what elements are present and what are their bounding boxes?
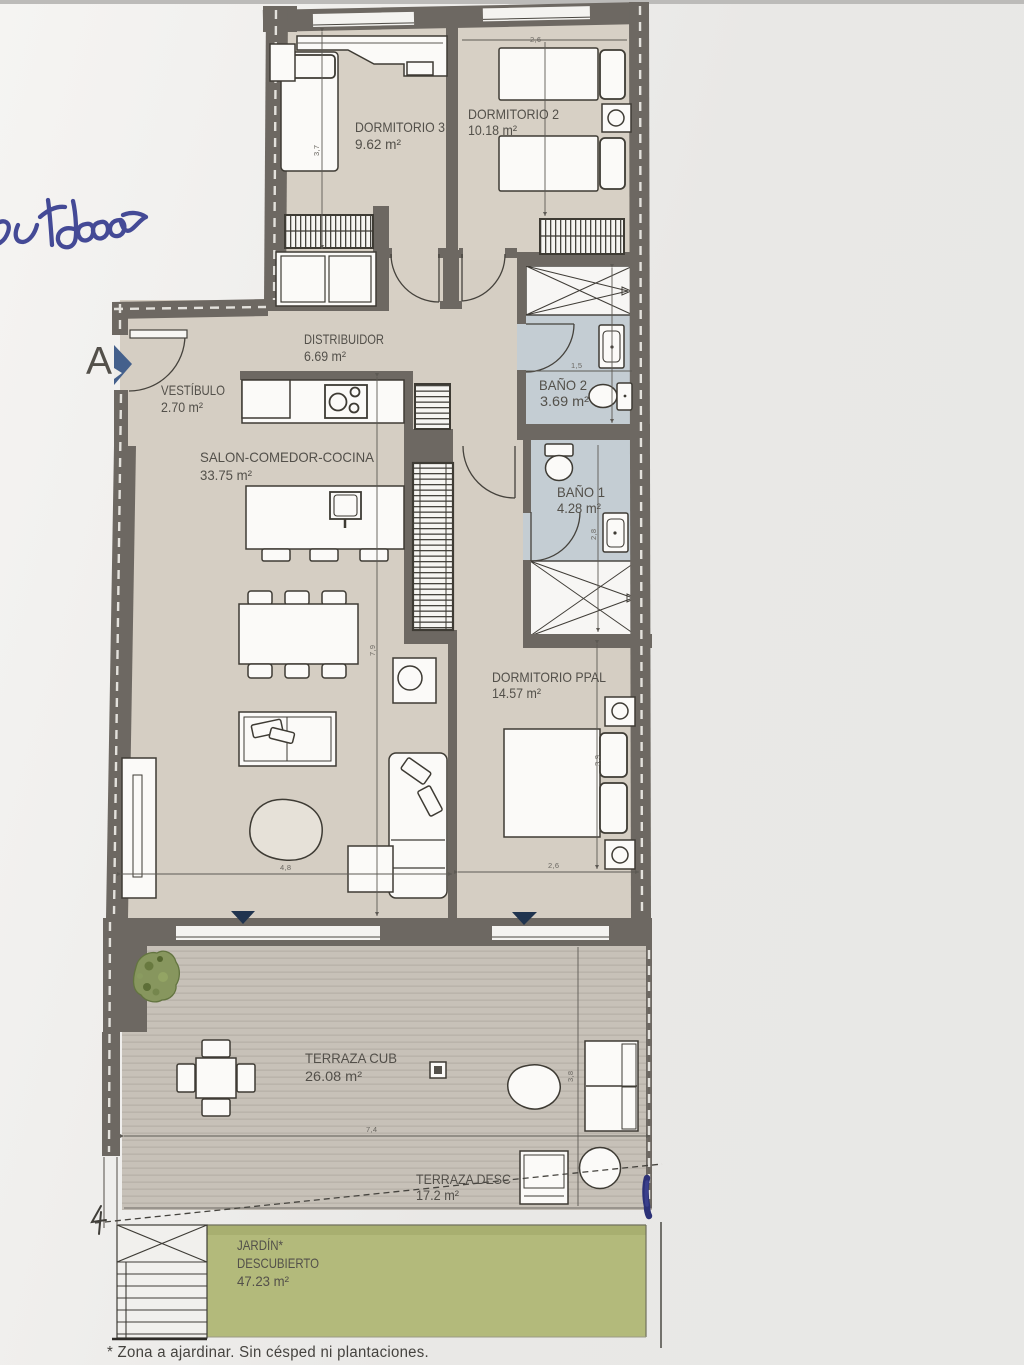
svg-text:3,8: 3,8 bbox=[566, 1071, 575, 1082]
svg-text:* Zona a ajardinar. Sin césped: * Zona a ajardinar. Sin césped ni planta… bbox=[107, 1344, 429, 1361]
svg-text:BAÑO 1: BAÑO 1 bbox=[557, 484, 605, 500]
svg-text:47.23 m²: 47.23 m² bbox=[237, 1273, 289, 1289]
svg-text:33.75 m²: 33.75 m² bbox=[200, 467, 252, 483]
svg-text:2,6: 2,6 bbox=[548, 861, 559, 870]
svg-text:9.62 m²: 9.62 m² bbox=[355, 136, 401, 152]
svg-text:17.2 m²: 17.2 m² bbox=[416, 1187, 459, 1203]
svg-text:DORMITORIO 2: DORMITORIO 2 bbox=[468, 106, 559, 122]
svg-text:10.18 m²: 10.18 m² bbox=[468, 122, 517, 138]
svg-text:7,4: 7,4 bbox=[366, 1125, 377, 1134]
svg-text:VESTÍBULO: VESTÍBULO bbox=[161, 382, 225, 398]
svg-text:DORMITORIO 3: DORMITORIO 3 bbox=[355, 119, 445, 135]
svg-text:6.69 m²: 6.69 m² bbox=[304, 348, 346, 364]
svg-text:1,5: 1,5 bbox=[571, 361, 582, 370]
svg-text:14.57 m²: 14.57 m² bbox=[492, 685, 541, 701]
svg-text:TERRAZA CUB: TERRAZA CUB bbox=[305, 1050, 397, 1066]
svg-text:7,9: 7,9 bbox=[368, 645, 377, 656]
svg-text:DORMITORIO PPAL: DORMITORIO PPAL bbox=[492, 669, 606, 685]
svg-text:3.69 m²: 3.69 m² bbox=[540, 393, 589, 409]
svg-text:3,7: 3,7 bbox=[312, 145, 321, 156]
svg-text:3,9: 3,9 bbox=[593, 755, 602, 766]
svg-text:4.28 m²: 4.28 m² bbox=[557, 500, 601, 516]
svg-text:BAÑO 2: BAÑO 2 bbox=[539, 377, 587, 393]
svg-text:26.08 m²: 26.08 m² bbox=[305, 1068, 362, 1084]
svg-text:DISTRIBUIDOR: DISTRIBUIDOR bbox=[304, 331, 384, 347]
svg-text:A: A bbox=[86, 340, 112, 383]
svg-text:DESCUBIERTO: DESCUBIERTO bbox=[237, 1255, 319, 1271]
svg-text:4,8: 4,8 bbox=[280, 863, 291, 872]
svg-text:SALON-COMEDOR-COCINA: SALON-COMEDOR-COCINA bbox=[200, 449, 375, 465]
svg-text:2,6: 2,6 bbox=[530, 35, 541, 44]
svg-text:2.70 m²: 2.70 m² bbox=[161, 399, 203, 415]
svg-text:2,8: 2,8 bbox=[589, 529, 598, 540]
svg-text:TERRAZA DESC: TERRAZA DESC bbox=[416, 1171, 511, 1187]
svg-text:JARDÍN*: JARDÍN* bbox=[237, 1237, 283, 1253]
